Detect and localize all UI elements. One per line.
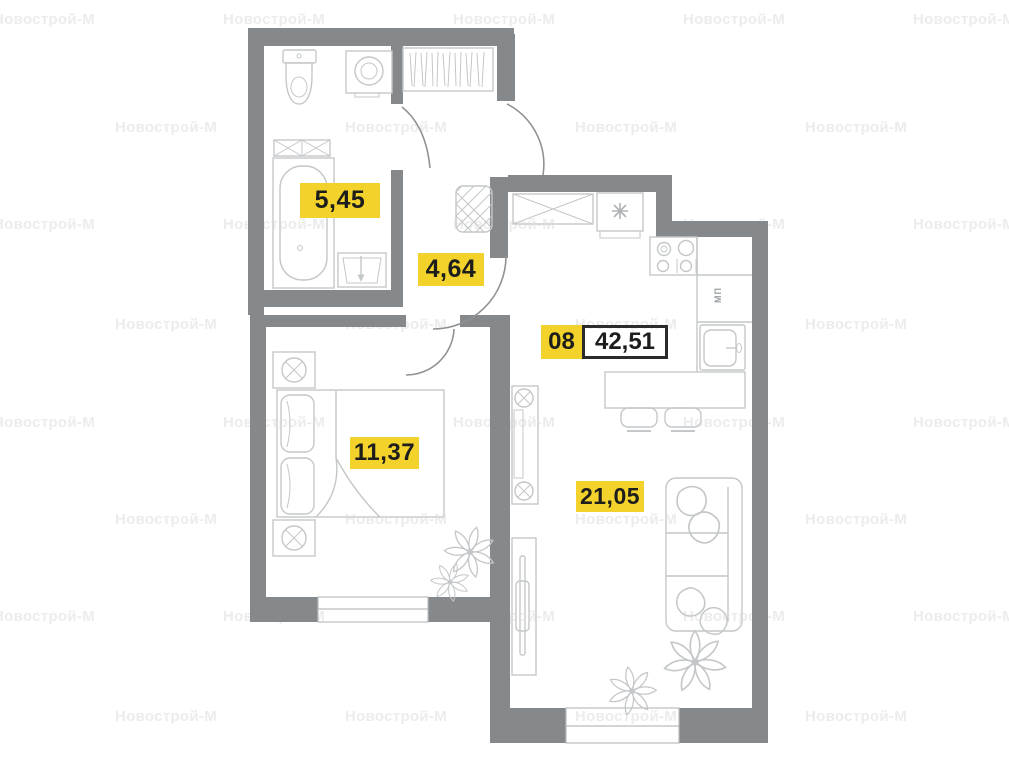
unit-total-area: 42,51 bbox=[582, 325, 668, 359]
bathroom-shelf-icon bbox=[274, 140, 330, 156]
shelf-unit-icon bbox=[512, 386, 538, 504]
kitchen-mp-label: МП bbox=[713, 280, 725, 310]
nightstand-icon bbox=[273, 352, 315, 388]
tv-unit-icon bbox=[512, 538, 536, 675]
living-room-window bbox=[566, 708, 679, 743]
unit-number-badge: 08 bbox=[541, 325, 582, 359]
bathroom-sink-icon bbox=[338, 253, 386, 287]
bathroom-door-arc bbox=[402, 107, 430, 168]
bedroom-door-arc bbox=[406, 329, 454, 375]
kitchen-sink-icon bbox=[700, 325, 745, 370]
floor-plan-page: 5,45 4,64 11,37 21,05 08 42,51 МП Новост… bbox=[0, 0, 1009, 768]
nightstand-icon bbox=[273, 520, 315, 556]
bar-stool-icon bbox=[621, 408, 657, 431]
room-area-label-hallway: 4,64 bbox=[418, 253, 484, 286]
sofa-icon bbox=[666, 478, 742, 640]
room-area-label-bathroom: 5,45 bbox=[300, 183, 380, 218]
unit-label: 08 42,51 bbox=[541, 325, 668, 359]
entrance-door-arc bbox=[507, 104, 544, 175]
washing-machine-icon bbox=[346, 51, 392, 97]
fridge-icon bbox=[597, 193, 643, 238]
room-area-label-living-kitchen: 21,05 bbox=[576, 481, 644, 512]
bar-stool-icon bbox=[665, 408, 701, 431]
kitchen-cabinet-icon bbox=[513, 194, 593, 224]
bathtub-icon bbox=[273, 158, 334, 288]
room-area-label-bedroom: 11,37 bbox=[350, 437, 419, 469]
bedroom-window bbox=[318, 597, 428, 622]
bar-table-icon bbox=[605, 372, 745, 408]
toilet-icon bbox=[283, 50, 316, 104]
cooktop-icon bbox=[650, 237, 697, 275]
wardrobe-icon bbox=[403, 48, 493, 91]
floor-plan-drawing bbox=[0, 0, 1009, 768]
